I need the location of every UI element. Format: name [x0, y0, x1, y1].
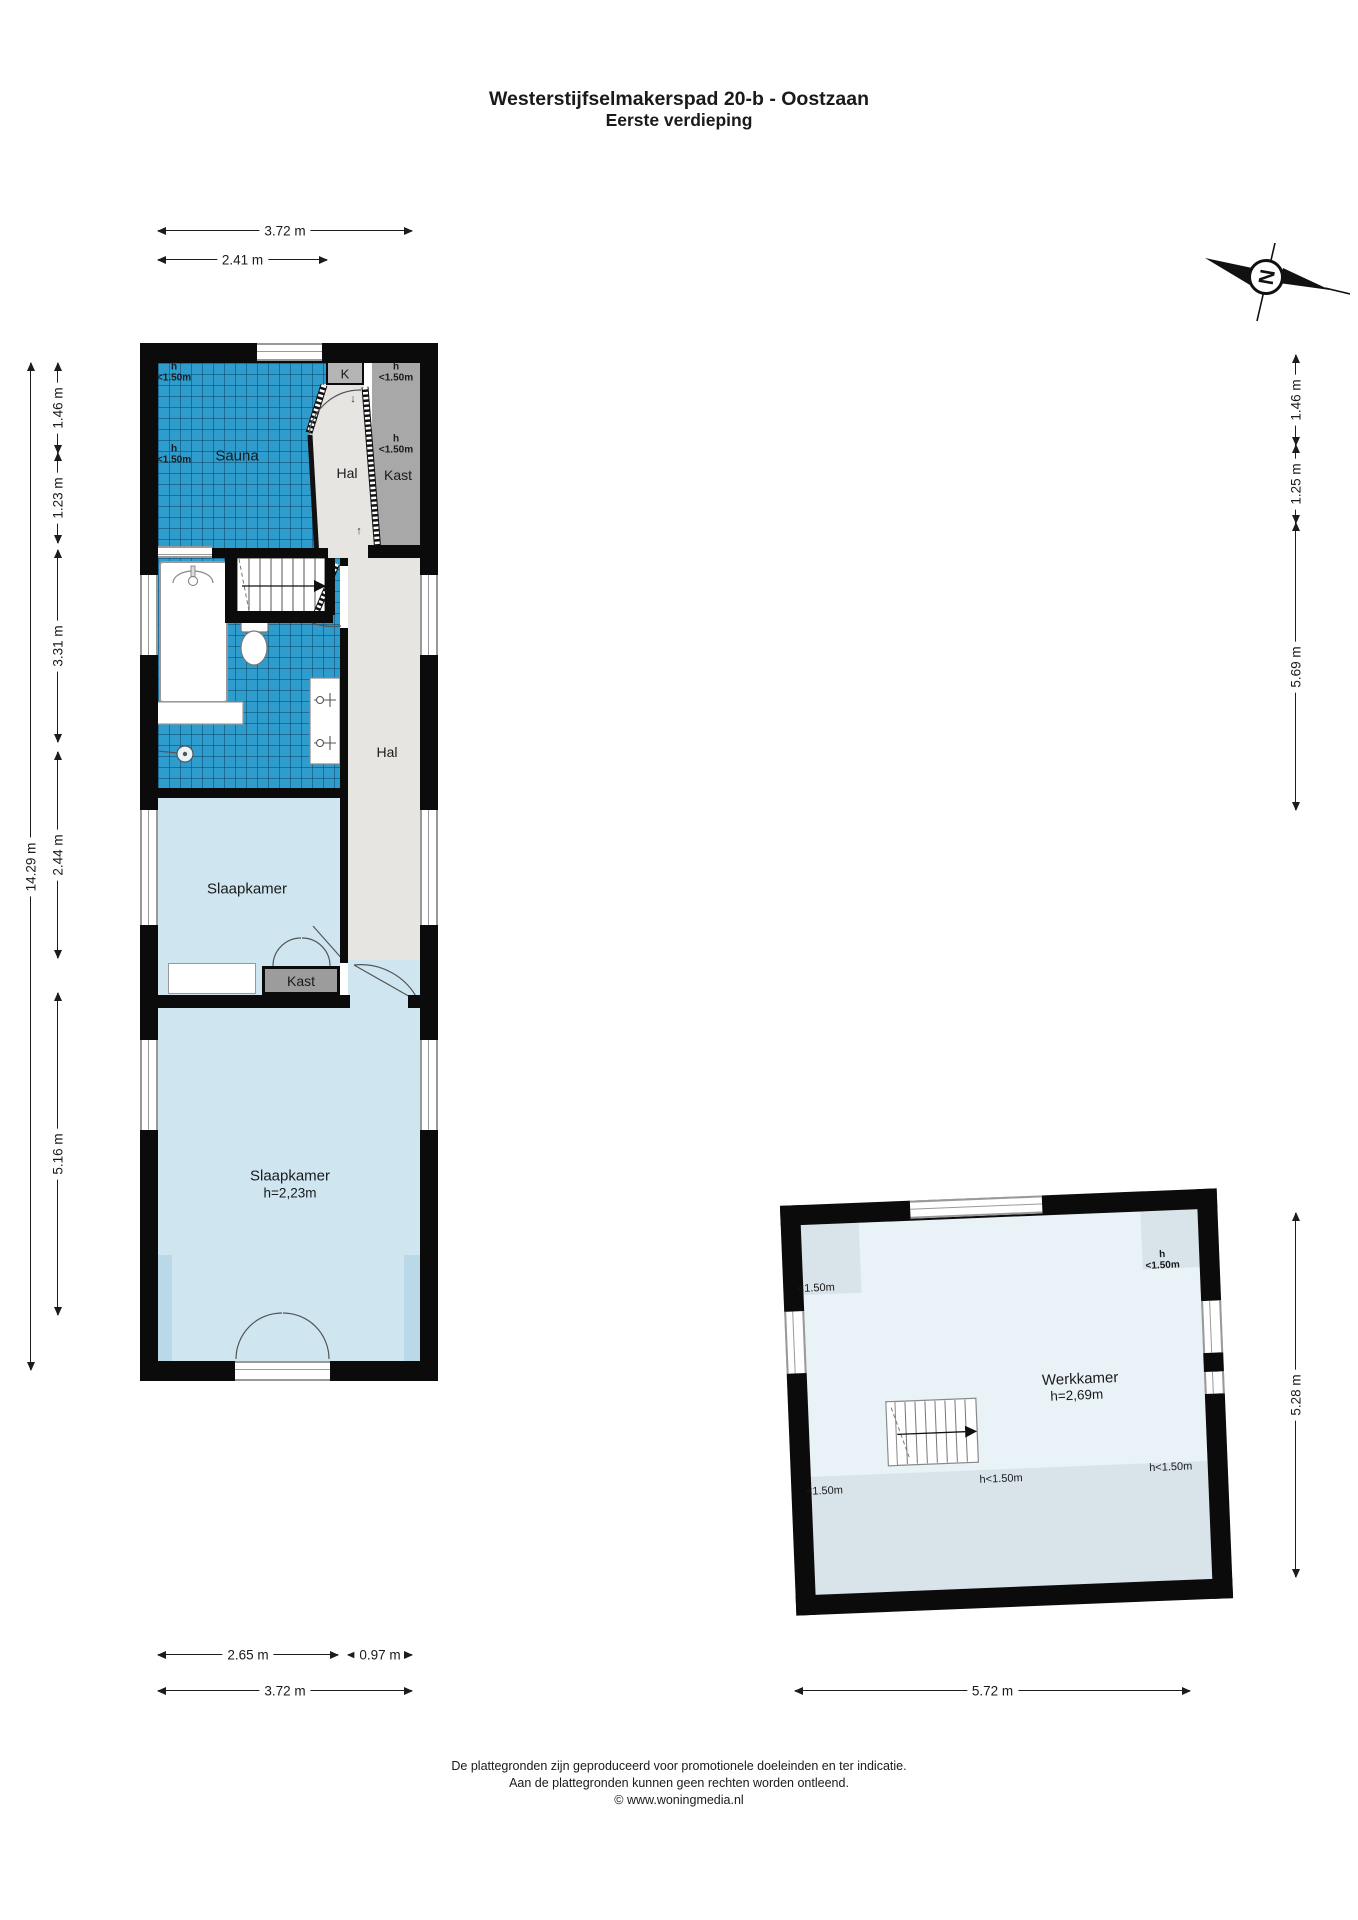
dimension-top-total: 3.72 m — [158, 230, 412, 231]
footer-line-1: De plattegronden zijn geproduceerd voor … — [0, 1758, 1358, 1775]
dimension-right-3: 5.69 m — [1295, 523, 1296, 810]
werk-window-right-1 — [1201, 1300, 1223, 1353]
french-door-left-arc — [236, 1313, 282, 1359]
dimension-right-4: 5.28 m — [1295, 1213, 1296, 1577]
footer-credit: © www.woningmedia.nl — [0, 1792, 1358, 1809]
dimension-left-total: 14.29 m — [30, 363, 31, 1370]
werk-low-label-bottomleft: <1.50m — [806, 1485, 843, 1497]
werk-low-label-topright: h <1.50m — [1145, 1249, 1180, 1271]
werk-low-label-bottomright: h<1.50m — [1149, 1461, 1193, 1473]
sauna-glass-partition — [158, 546, 212, 558]
window-left-3 — [140, 1040, 158, 1130]
stairs-right-wall — [325, 558, 335, 615]
compass-north-icon: N — [1205, 233, 1350, 328]
werkkamer-height-label: h=2,69m — [1050, 1387, 1103, 1404]
kast-top-label: Kast — [384, 467, 412, 483]
kast-top-low-height-label-1: h <1.50m — [379, 363, 413, 384]
dimension-left-1: 1.46 m — [57, 363, 58, 453]
hal-top-label: Hal — [336, 465, 357, 481]
window-top — [257, 343, 322, 361]
bed — [168, 963, 256, 994]
dimension-bottom-3: 3.72 m — [158, 1690, 412, 1691]
window-right-2 — [420, 810, 438, 925]
werk-low-label-bottomcenter: h<1.50m — [979, 1473, 1023, 1485]
footer-disclaimer: De plattegronden zijn geproduceerd voor … — [0, 1758, 1358, 1809]
dimension-bottom-1: 2.65 m — [158, 1654, 338, 1655]
werk-window-left — [784, 1311, 806, 1374]
building-drawing-layer — [140, 343, 438, 1381]
window-left-2 — [140, 810, 158, 925]
page-title: Westerstijfselmakerspad 20-b - Oostzaan — [0, 88, 1358, 111]
werkkamer-building: <1.50m h <1.50m Werkkamer h=2,69m <1.50m… — [780, 1188, 1233, 1615]
dimension-left-5: 5.16 m — [57, 993, 58, 1315]
closet-door-left-arc — [273, 938, 301, 966]
dimension-left-3: 3.31 m — [57, 550, 58, 742]
french-door-sill — [235, 1361, 330, 1381]
dimension-right-1: 1.46 m — [1295, 355, 1296, 445]
werk-low-label-topleft: <1.50m — [798, 1283, 835, 1295]
closet-door-right-arc — [302, 938, 330, 966]
bedroom-divider-wall — [140, 995, 350, 1008]
main-building: h <1.50m h <1.50m Sauna K h <1.50m h <1.… — [140, 343, 438, 1381]
kast-closet-label: Kast — [287, 973, 315, 989]
bedroom2-label: Slaapkamer — [250, 1168, 330, 1185]
footer-line-2: Aan de plattegronden kunnen geen rechten… — [0, 1775, 1358, 1792]
vanity-double-sink — [310, 678, 340, 764]
bathroom-bedroom1-wall — [158, 788, 340, 798]
stairs-down-arrow: ↓ — [350, 393, 356, 405]
bedroom1-label: Slaapkamer — [207, 881, 287, 898]
stairs-bottom-wall — [225, 611, 333, 623]
dimension-bottom-2: 0.97 m — [348, 1654, 412, 1655]
bedroom2-height-label: h=2,23m — [264, 1186, 317, 1201]
hal-divider-wall — [340, 628, 348, 963]
dimension-left-2: 1.23 m — [57, 453, 58, 543]
k-closet-label: K — [341, 367, 350, 382]
werk-window-right-2 — [1204, 1371, 1225, 1394]
window-right-1 — [420, 575, 438, 655]
dimension-top-inner: 2.41 m — [158, 259, 327, 260]
window-left-1 — [140, 575, 158, 655]
dimension-left-4: 2.44 m — [57, 752, 58, 958]
page-subtitle: Eerste verdieping — [0, 110, 1358, 131]
hal-mid-label: Hal — [376, 744, 397, 760]
sauna-low-height-label-1: h <1.50m — [157, 363, 191, 384]
floorplan-page: Westerstijfselmakerspad 20-b - Oostzaan … — [0, 0, 1358, 1920]
french-door-right-arc — [283, 1313, 329, 1359]
bathroom-shelf — [157, 702, 243, 724]
kast-top-bottom-wall — [368, 545, 420, 558]
kast-top-low-height-label-2: h <1.50m — [379, 435, 413, 456]
window-right-3 — [420, 1040, 438, 1130]
sauna-low-height-label-2: h <1.50m — [157, 445, 191, 466]
werkkamer-label: Werkkamer — [1042, 1369, 1119, 1389]
dimension-right-2: 1.25 m — [1295, 445, 1296, 523]
stairs-up-arrow: ↑ — [356, 525, 362, 537]
dimension-bottom-4: 5.72 m — [795, 1690, 1190, 1691]
sauna-label: Sauna — [215, 448, 258, 465]
